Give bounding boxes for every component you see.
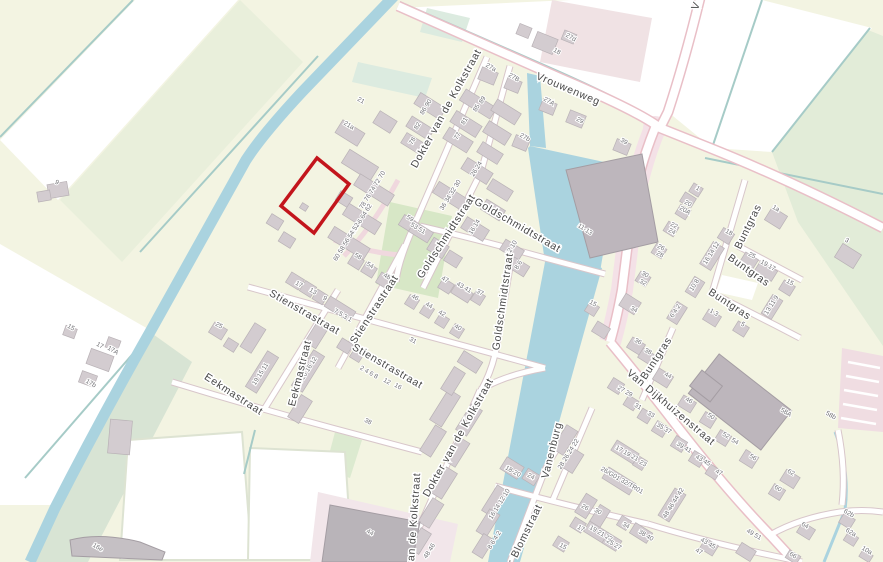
building (37, 190, 52, 202)
map-view[interactable]: 1827d27a27B27A2927b392121a89858177908682… (0, 0, 883, 562)
building (108, 419, 133, 455)
